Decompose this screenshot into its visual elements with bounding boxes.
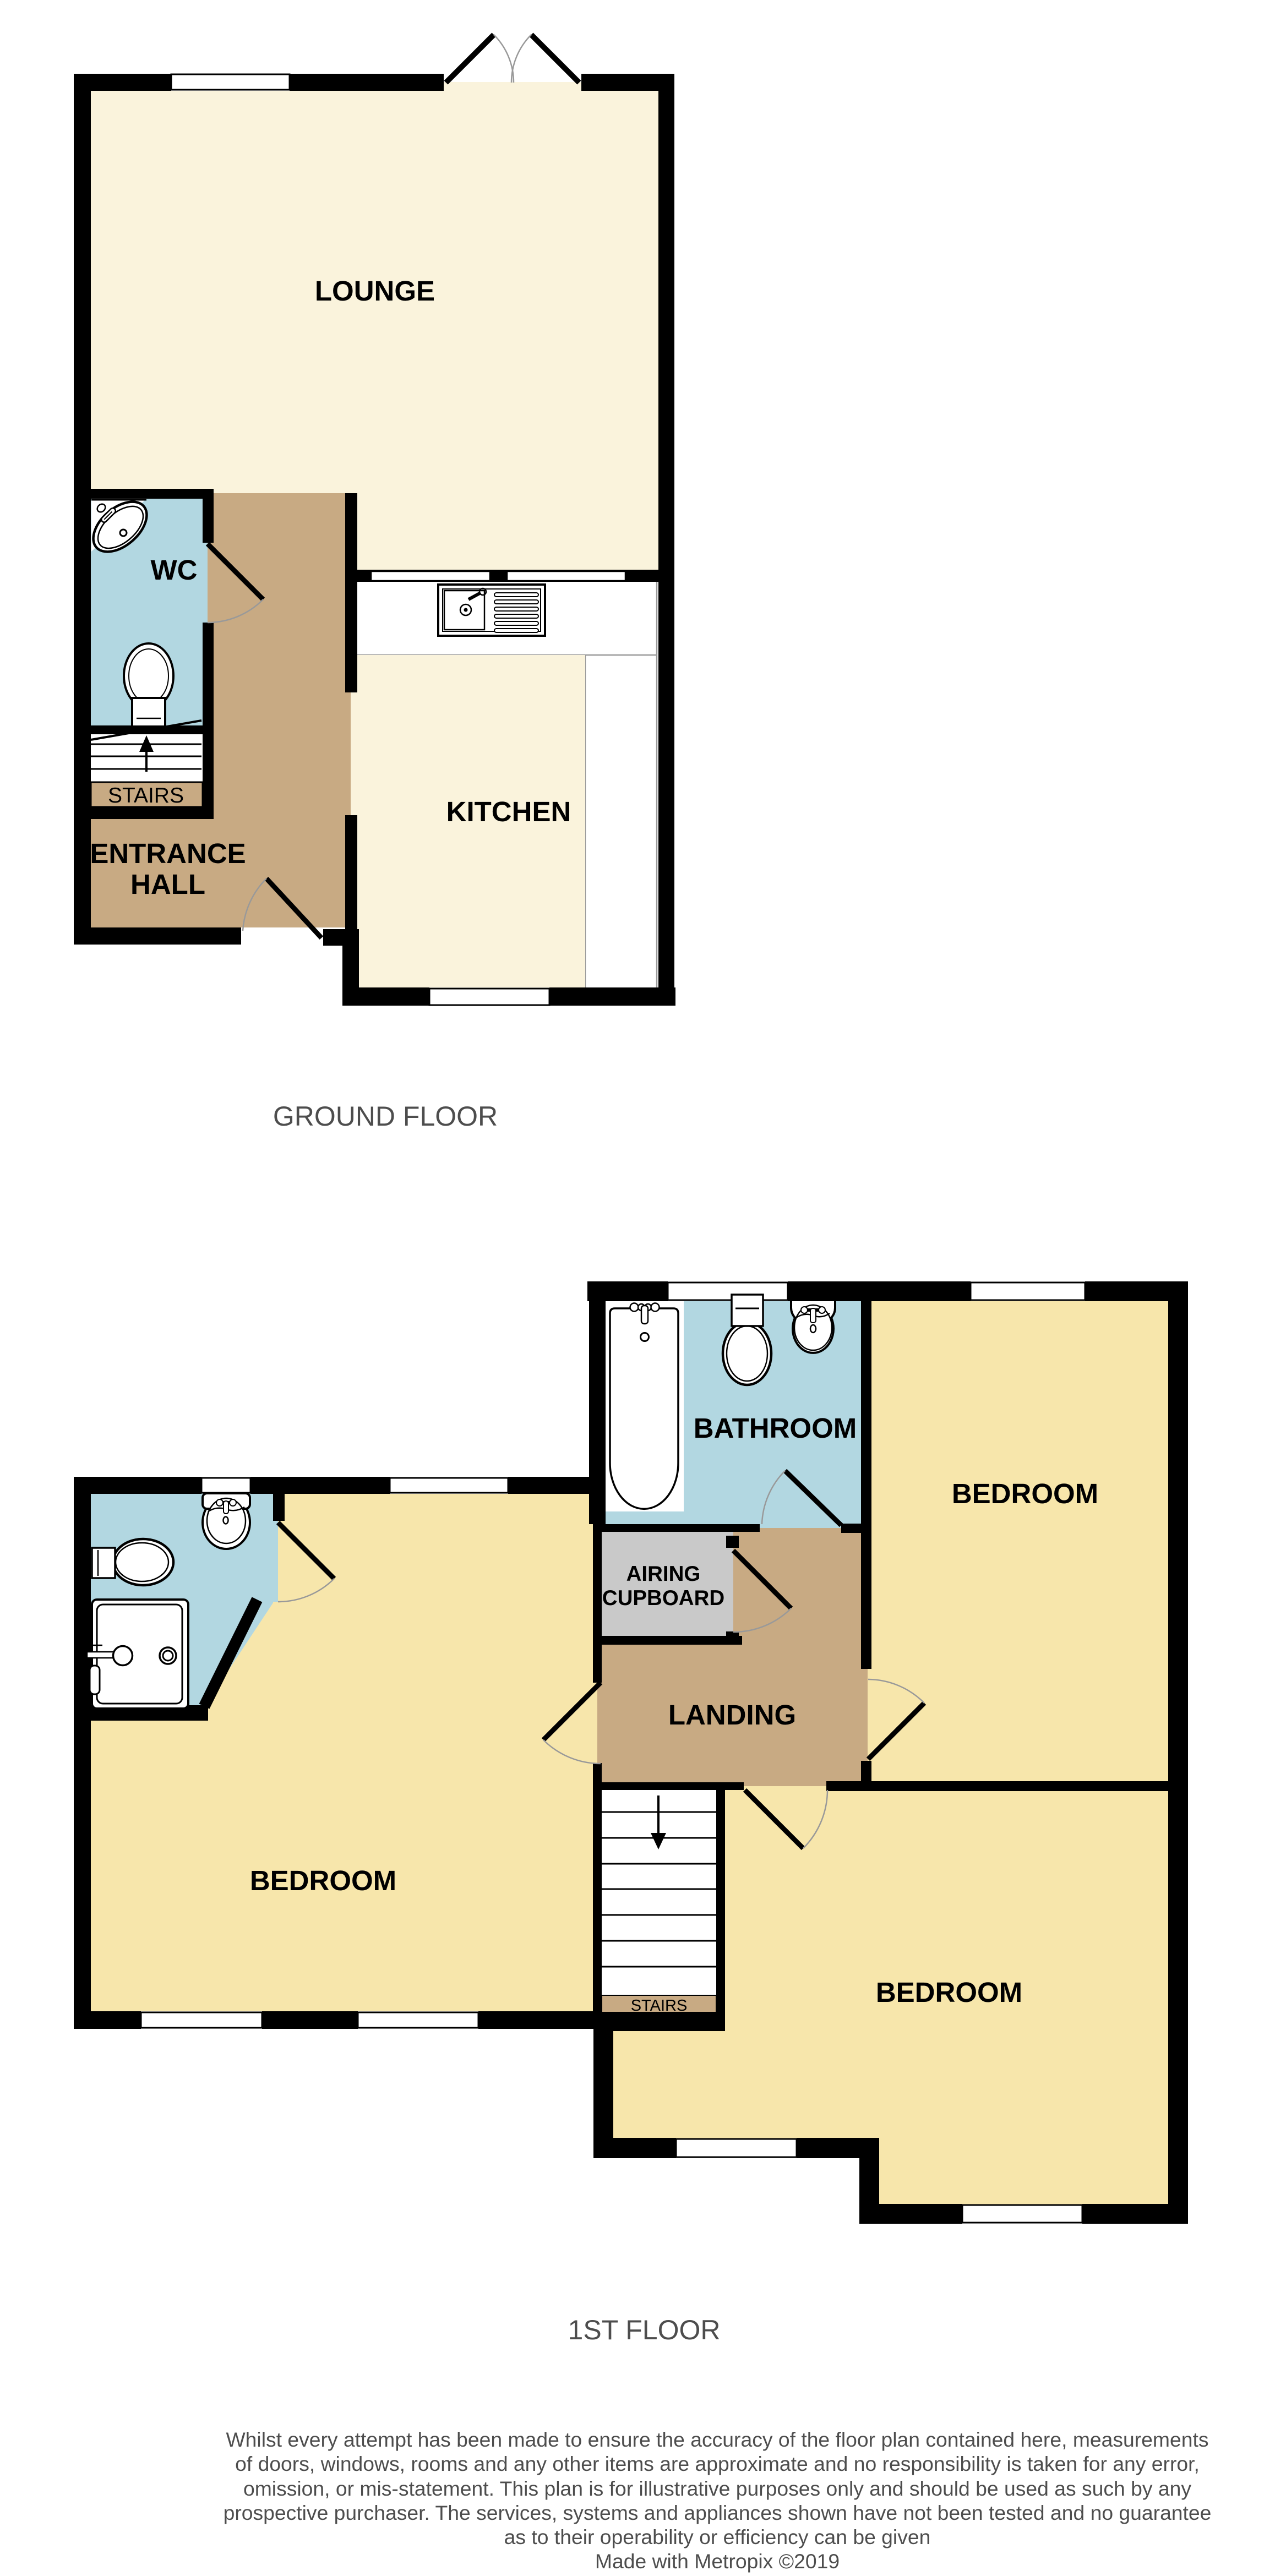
svg-text:AIRING: AIRING	[626, 1562, 701, 1586]
svg-text:STAIRS: STAIRS	[631, 1997, 688, 2015]
svg-text:BEDROOM: BEDROOM	[250, 1865, 396, 1896]
svg-text:1ST FLOOR: 1ST FLOOR	[568, 2315, 721, 2345]
svg-text:STAIRS: STAIRS	[108, 784, 184, 807]
svg-text:GROUND FLOOR: GROUND FLOOR	[273, 1101, 498, 1132]
svg-text:LOUNGE: LOUNGE	[315, 275, 435, 307]
svg-text:HALL: HALL	[130, 869, 205, 900]
svg-text:WC: WC	[151, 554, 198, 586]
svg-text:Whilst every attempt has been: Whilst every attempt has been made to en…	[226, 2428, 1208, 2451]
svg-text:as to their operability or eff: as to their operability or efficiency ca…	[504, 2525, 931, 2548]
svg-text:omission, or mis-statement. Th: omission, or mis-statement. This plan is…	[243, 2477, 1191, 2500]
svg-text:prospective purchaser. The ser: prospective purchaser. The services, sys…	[224, 2501, 1212, 2524]
svg-text:ENTRANCE: ENTRANCE	[90, 838, 246, 869]
svg-text:KITCHEN: KITCHEN	[446, 796, 571, 827]
svg-text:CUPBOARD: CUPBOARD	[602, 1586, 724, 1610]
svg-text:BATHROOM: BATHROOM	[694, 1412, 857, 1444]
svg-text:BEDROOM: BEDROOM	[876, 1977, 1022, 2008]
svg-text:of doors, windows, rooms and a: of doors, windows, rooms and any other i…	[235, 2452, 1200, 2475]
svg-text:Made with Metropix ©2019: Made with Metropix ©2019	[595, 2550, 840, 2573]
svg-text:LANDING: LANDING	[668, 1699, 796, 1731]
svg-text:BEDROOM: BEDROOM	[952, 1478, 1098, 1509]
